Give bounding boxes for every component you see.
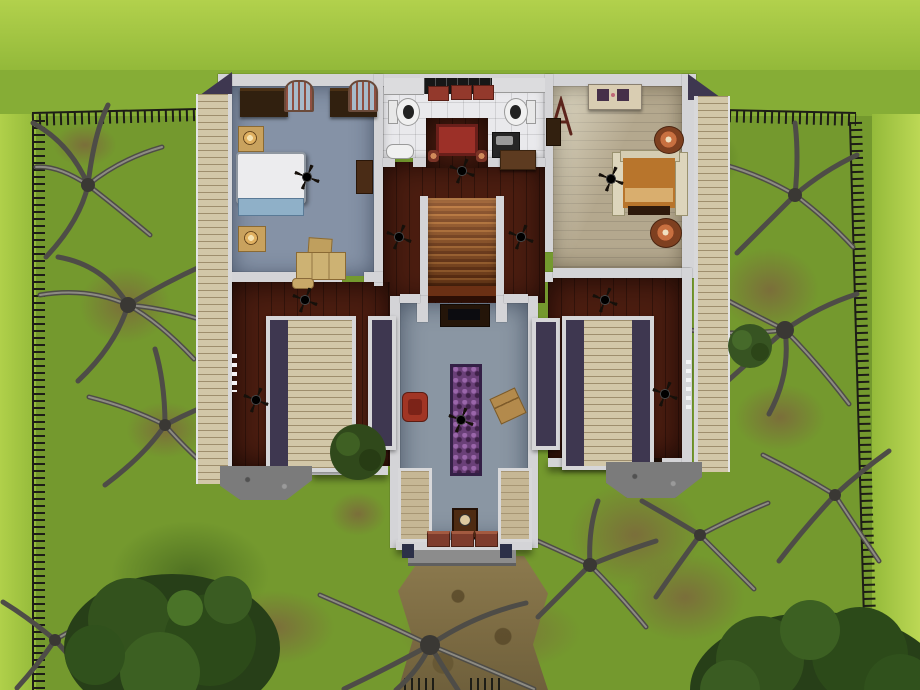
flora-layer [0, 0, 920, 690]
game-viewport [0, 0, 920, 690]
bush [728, 324, 772, 368]
green-tree-canopy [690, 600, 920, 690]
green-tree-canopy [64, 574, 280, 690]
bush [330, 424, 386, 480]
